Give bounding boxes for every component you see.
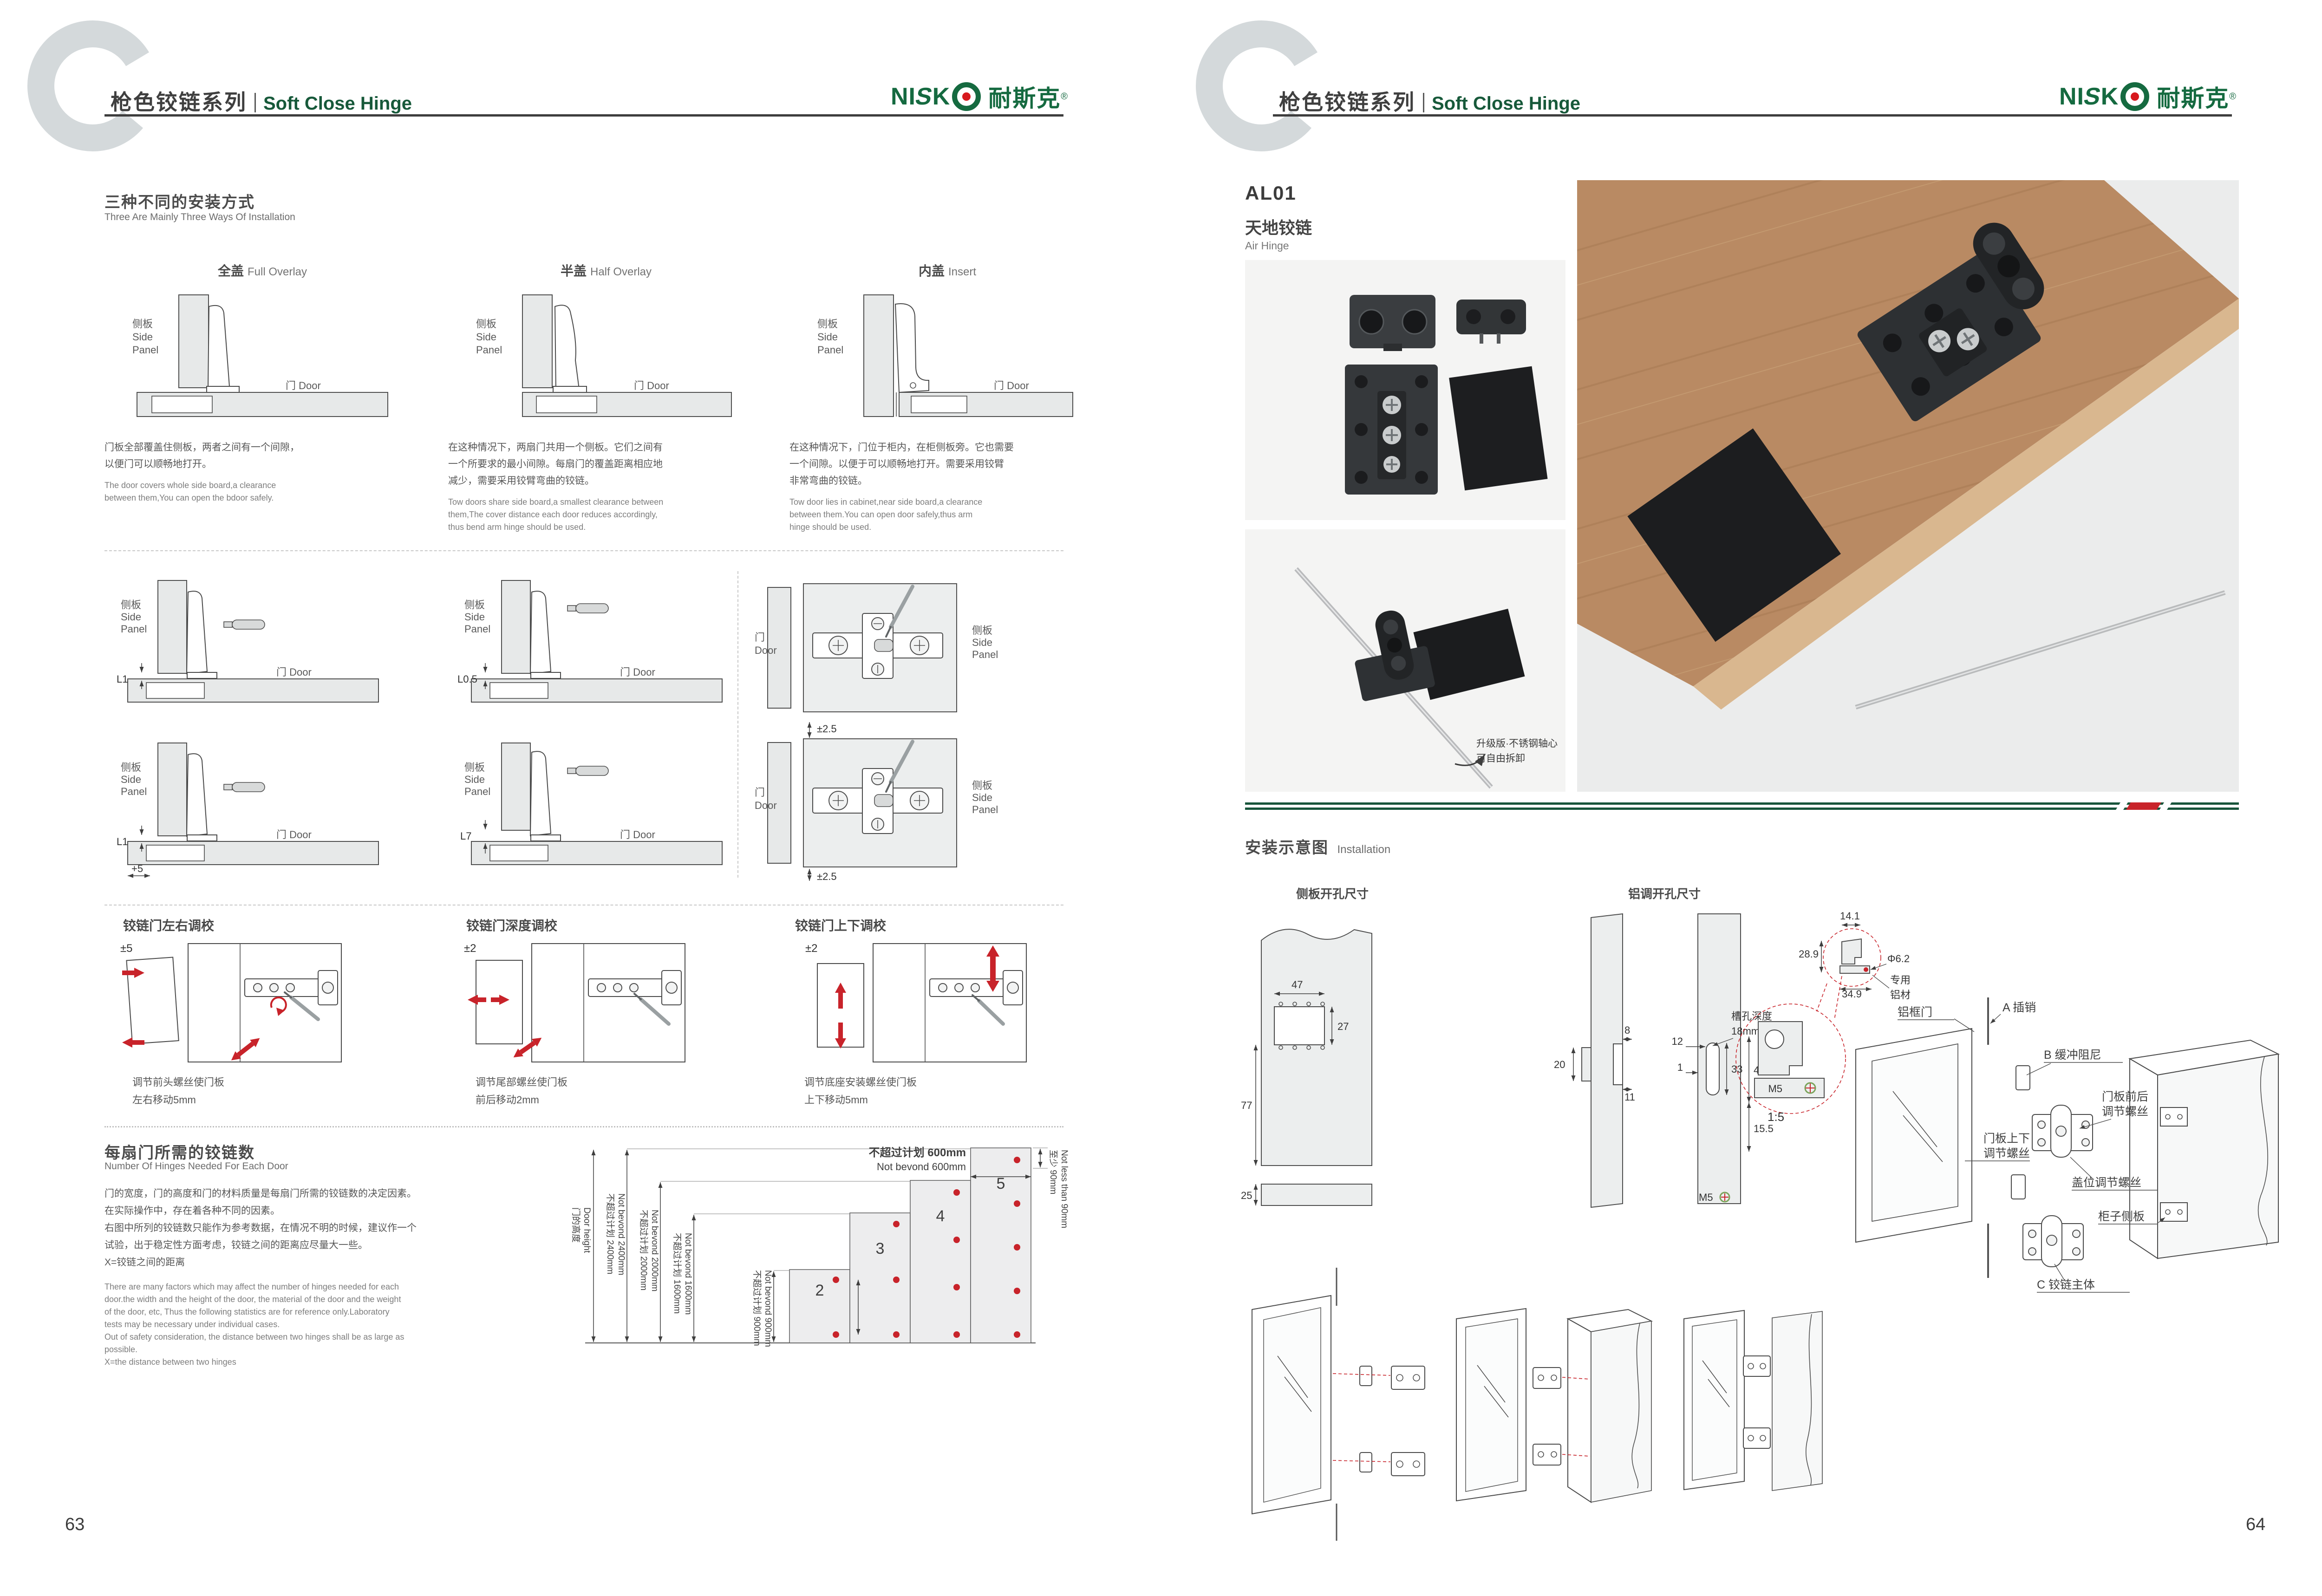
chart-900-cn: 不超过计划 900mm: [752, 1270, 762, 1346]
half-overlay-diagram: 侧板 Side Panel 门 Door: [467, 288, 745, 427]
label-updown-screw-2: 调节螺丝: [1983, 1147, 2030, 1160]
product-photo-parts: [1245, 260, 1565, 520]
method-desc-cn: 在这种情况下，门位于柜内，在柜侧板旁。它也需要 一个间隙。以便于可以顺畅地打开。…: [789, 439, 1105, 489]
label-frontback-screw-2: 调节螺丝: [2102, 1105, 2148, 1118]
product-name-en: Air Hinge: [1245, 240, 1289, 252]
door-label: 门 Door: [620, 666, 655, 678]
method-desc-en: The door covers whole side board,a clear…: [104, 479, 420, 504]
method-half-overlay: 半盖Half Overlay 侧板 Side Panel 门 Door 在这种情…: [448, 261, 764, 534]
dim-1: 1: [1677, 1062, 1683, 1073]
hinge-upper: [2032, 1105, 2093, 1157]
door-label: 门 Door: [276, 666, 312, 678]
label-a-pin: A 插销: [2002, 1001, 2036, 1014]
logo-o-icon: [2120, 82, 2149, 111]
series-title: 枪色铰链系列Soft Close Hinge: [1279, 85, 1580, 116]
adjust-diagram-depth: ±2: [462, 938, 759, 1068]
side-panel-label-en2: Panel: [972, 649, 998, 660]
chart-2400-en: Not bevond 2400mm: [616, 1193, 626, 1275]
method-desc-cn: 门板全部覆盖住侧板，两者之间有一个间隙， 以便门可以顺畅地打开。: [104, 439, 420, 473]
page-64: 枪色铰链系列Soft Close Hinge NISK耐斯克® AL01 天地铰…: [1168, 0, 2322, 1596]
logo-registered: ®: [1061, 91, 1068, 102]
method-heading: 全盖Full Overlay: [104, 261, 420, 280]
header-rule: [104, 114, 1063, 117]
side-panel-label-en2: Panel: [464, 623, 490, 635]
mounting-plate-diagram-bottom: ±2.5 ±2.5 门 Door 侧板 Side Panel: [755, 717, 1066, 885]
chart-min90-en: Not less than 90mm: [1059, 1150, 1069, 1228]
clearance-diagram-L1: L1 侧板 Side Panel 门 Door: [114, 576, 392, 715]
door-label-en: Door: [755, 800, 777, 811]
dim-28-9: 28.9: [1799, 948, 1819, 960]
method-heading: 内盖Insert: [789, 261, 1105, 280]
hinges-title-cn: 每扇门所需的铰链数: [104, 1140, 255, 1163]
label-aluminium-frame-door: 铝框门: [1898, 1006, 1932, 1019]
assembly-steps-drawing: [1233, 1249, 1837, 1546]
side-panel-label-en2: Panel: [121, 786, 147, 797]
tolerance: ±5: [120, 942, 133, 955]
product-code: AL01: [1245, 182, 1297, 204]
dim-8: 8: [1624, 1024, 1630, 1036]
label-updown-screw-1: 门板上下: [1983, 1132, 2030, 1145]
adjust-caption-3: 调节底座安装螺丝使门板 上下移动5mm: [804, 1074, 917, 1109]
tolerance: ±2: [805, 942, 818, 955]
series-divider: [1423, 93, 1424, 112]
side-panel-label-en1: Side: [972, 637, 992, 648]
divider-dashed-2: [104, 905, 1063, 905]
dim-77: 77: [1241, 1100, 1252, 1111]
side-panel-label-cn: 侧板: [132, 318, 153, 330]
bar-count-5: 5: [997, 1175, 1005, 1192]
logo-o-icon: [952, 82, 981, 111]
logo-red-dot-icon: [2131, 92, 2139, 101]
logo-red-dot-icon: [962, 92, 971, 101]
photo-note-line2: 可自由拆卸: [1476, 753, 1525, 764]
chart-900-en: Not bevond 900mm: [763, 1270, 773, 1347]
divider-red-dash: [2126, 802, 2161, 810]
side-panel-label-en2: Panel: [121, 623, 147, 635]
method-desc-en: Tow doors share side board,a smallest cl…: [448, 496, 764, 534]
chart-600-cn: 不超过计划 600mm: [869, 1147, 966, 1159]
hinges-title-en: Number Of Hinges Needed For Each Door: [104, 1161, 288, 1172]
nisko-logo: NISK耐斯克®: [2059, 80, 2236, 113]
adjust-diagram-left-right: ±5: [118, 938, 416, 1068]
series-divider: [254, 93, 256, 112]
gap-dim: L7: [460, 830, 471, 842]
door-label: 门 Door: [276, 829, 312, 840]
door-label-en: Door: [755, 645, 777, 656]
page-number-64: 64: [2246, 1515, 2265, 1535]
chart-600-en: Not bevond 600mm: [877, 1161, 966, 1173]
page-63: 枪色铰链系列Soft Close Hinge NISK耐斯克® 三种不同的安装方…: [0, 0, 1168, 1596]
side-panel-label-cn: 侧板: [972, 780, 992, 791]
chart-1600-en: Not bevond 1600mm: [683, 1233, 693, 1315]
logo-cjk: 耐斯克: [2157, 80, 2229, 113]
divider-dashed-vertical: [737, 571, 738, 878]
method-desc-cn: 在这种情况下，两扇门共用一个侧板。它们之间有 一个所要求的最小间隙。每扇门的覆盖…: [448, 439, 764, 489]
dim-11: 11: [1624, 1091, 1635, 1103]
series-title-en: Soft Close Hinge: [263, 93, 412, 114]
drawing2-title: 铝调开孔尺寸: [1628, 885, 1701, 902]
product-photo-hero: [1577, 180, 2239, 792]
catalog-spread: 枪色铰链系列Soft Close Hinge NISK耐斯克® 三种不同的安装方…: [0, 0, 2322, 1596]
dim-14-1: 14.1: [1840, 910, 1860, 922]
adjust-caption-2: 调节尾部螺丝使门板 前后移动2mm: [476, 1074, 567, 1109]
door-label: 门 Door: [994, 380, 1029, 391]
bar-count-3: 3: [876, 1240, 885, 1257]
side-panel-label-en2: Panel: [972, 804, 998, 815]
tolerance: ±2: [464, 942, 476, 955]
bar-count-4: 4: [936, 1207, 945, 1225]
hinges-desc-en: There are many factors which may affect …: [104, 1281, 404, 1368]
method-name-en: Full Overlay: [248, 266, 307, 278]
green-divider-bar: [1245, 802, 2239, 810]
logo-n: NI: [891, 83, 916, 111]
door-label: 门 Door: [620, 829, 655, 840]
side-panel-label-en1: Side: [464, 774, 485, 785]
adjust-diagram-up-down: ±2: [803, 938, 1101, 1068]
chart-1600-cn: 不超过计划 1600mm: [672, 1233, 682, 1314]
door-label: 门 Door: [634, 380, 669, 391]
side-panel-label-cn: 侧板: [121, 762, 141, 773]
side-panel-label-en1: Side: [132, 331, 153, 343]
installation-title-cn: 安装示意图: [1245, 839, 1329, 857]
divider-dashed-1: [104, 550, 1063, 551]
side-panel-label-cn: 侧板: [464, 599, 485, 611]
gap-dim: L1: [117, 836, 128, 847]
side-panel-label-en2: Panel: [464, 786, 490, 797]
installation-title-en: Installation: [1337, 843, 1390, 856]
ways-title-en: Three Are Mainly Three Ways Of Installat…: [104, 212, 295, 223]
side-panel-label-en1: Side: [972, 792, 992, 803]
side-panel-label-en1: Side: [817, 331, 838, 343]
side-panel-label-en1: Side: [121, 611, 141, 623]
chart-door-height-cn: 门的高度: [571, 1207, 581, 1243]
product-name-cn: 天地铰链: [1245, 215, 1312, 239]
door-label: 门 Door: [286, 380, 321, 391]
side-panel-label-en2: Panel: [817, 344, 843, 356]
side-panel-label-cn: 侧板: [972, 625, 992, 636]
adjust-caption-1: 调节前头螺丝使门板 左右移动5mm: [132, 1074, 224, 1109]
page-number-63: 63: [65, 1515, 85, 1535]
hinges-desc-cn: 门的宽度，门的高度和门的材料质量是每扇门所需的铰链数的决定因素。 在实际操作中，…: [104, 1185, 417, 1271]
exploded-assembly-drawing: 铝框门 A 插销 B 缓冲阻尼 门板上下 调节螺丝 门板前后 调节螺丝 盖位调节…: [1833, 989, 2322, 1296]
method-name-en: Half Overlay: [590, 266, 652, 278]
dim-12: 12: [1672, 1036, 1683, 1047]
detail-scale: 1:5: [1768, 1110, 1784, 1124]
logo-k: K: [933, 83, 951, 111]
side-panel-label-cn: 侧板: [121, 599, 141, 611]
dim-27: 27: [1337, 1021, 1349, 1032]
door-label-cn: 门: [755, 787, 765, 798]
side-panel-label-en1: Side: [121, 774, 141, 785]
divider-dotted: [104, 1126, 1063, 1127]
series-title-en: Soft Close Hinge: [1432, 93, 1580, 114]
logo-registered: ®: [2229, 91, 2236, 102]
clearance-diagram-L0-5: L0.5 侧板 Side Panel 门 Door: [457, 576, 736, 715]
method-insert: 内盖Insert 侧板 Side Panel 门 Door 在这种情况下，门位于…: [789, 261, 1105, 534]
label-c-hinge-body: C 铰链主体: [2037, 1278, 2095, 1291]
gap-dim-extra: +5: [131, 863, 143, 874]
ways-title-cn: 三种不同的安装方式: [104, 189, 255, 212]
plate-dim-bottom: ±2.5: [817, 871, 837, 882]
label-cover-screw: 盖位调节螺丝: [2072, 1176, 2141, 1189]
logo-cjk: 耐斯克: [988, 80, 1061, 113]
dim-20: 20: [1554, 1059, 1565, 1070]
dim-m5: M5: [1699, 1192, 1713, 1203]
dim-25: 25: [1241, 1190, 1252, 1201]
bar-count-2: 2: [815, 1282, 824, 1299]
header-rule: [1273, 114, 2232, 117]
plate-dim-top: ±2.5: [817, 723, 837, 735]
dim-dia-6-2: Φ6.2: [1887, 953, 1910, 964]
series-title-cn: 枪色铰链系列: [111, 90, 247, 114]
method-full-overlay: 全盖Full Overlay 侧板 Side Panel 门 Door 门板全部…: [104, 261, 420, 504]
series-title-cn: 枪色铰链系列: [1279, 90, 1415, 114]
chart-2400-cn: 不超过计划 2400mm: [605, 1193, 615, 1274]
door-label-cn: 门: [755, 632, 765, 643]
gap-dim: L0.5: [457, 673, 477, 685]
drawing1-title: 侧板开孔尺寸: [1296, 885, 1369, 902]
side-panel-label-cn: 侧板: [464, 762, 485, 773]
clearance-diagram-L7: L7 侧板 Side Panel 门 Door: [457, 738, 736, 878]
logo-k: K: [2101, 83, 2119, 111]
chart-2000-en: Not bevond 2000mm: [650, 1210, 659, 1291]
side-panel-label-cn: 侧板: [476, 318, 496, 330]
side-panel-hole-drawing: 47 27 77 25: [1247, 905, 1470, 1231]
adjust-title-2: 铰链门深度调校: [466, 916, 557, 934]
side-panel-label-cn: 侧板: [817, 318, 838, 330]
gap-dim: L1: [117, 673, 128, 685]
label-frontback-screw-1: 门板前后: [2102, 1090, 2148, 1103]
full-overlay-diagram: 侧板 Side Panel 门 Door: [123, 288, 402, 427]
logo-n: NI: [2059, 83, 2084, 111]
side-panel-label-en1: Side: [476, 331, 496, 343]
product-photo-rod: 升级版·不锈钢轴心 可自由拆卸: [1245, 529, 1565, 792]
side-panel-label-en2: Panel: [476, 344, 502, 356]
method-name-cn: 内盖: [919, 264, 945, 278]
dim-47: 47: [1291, 979, 1303, 990]
method-name-cn: 全盖: [218, 264, 244, 278]
method-desc-en: Tow door lies in cabinet,near side board…: [789, 496, 1105, 534]
hinge-lower: [2023, 1216, 2083, 1267]
installation-heading: 安装示意图 Installation: [1245, 835, 1390, 858]
adjust-title-3: 铰链门上下调校: [795, 916, 886, 934]
chart-min90-cn: 至少 90mm: [1048, 1150, 1058, 1194]
side-panel-label-en1: Side: [464, 611, 485, 623]
divider-gap: [2159, 802, 2172, 810]
method-name-cn: 半盖: [561, 264, 587, 278]
method-heading: 半盖Half Overlay: [448, 261, 764, 280]
detail-m5: M5: [1768, 1083, 1782, 1094]
photo-note-line1: 升级版·不锈钢轴心: [1476, 738, 1558, 749]
profile-note-1: 专用: [1890, 974, 1911, 986]
insert-diagram: 侧板 Side Panel 门 Door: [808, 288, 1087, 427]
method-name-en: Insert: [948, 266, 976, 278]
nisko-logo: NISK耐斯克®: [891, 80, 1068, 113]
adjust-title-1: 铰链门左右调校: [123, 916, 214, 934]
label-b-damper: B 缓冲阻尼: [2044, 1049, 2101, 1062]
hinge-count-chart: 门的高度 Door height 不超过计划 2400mm Not bevond…: [557, 1138, 1068, 1361]
series-title: 枪色铰链系列Soft Close Hinge: [111, 85, 412, 116]
clearance-diagram-L1-plus5: L1 +5 侧板 Side Panel 门 Door: [114, 738, 392, 882]
side-panel-label-en2: Panel: [132, 344, 158, 356]
chart-2000-cn: 不超过计划 2000mm: [639, 1210, 649, 1290]
chart-door-height-en: Door height: [582, 1207, 592, 1253]
mounting-plate-diagram-top: 门 Door 侧板 Side Panel: [755, 578, 1066, 717]
label-cabinet-panel: 柜子侧板: [2098, 1210, 2145, 1223]
